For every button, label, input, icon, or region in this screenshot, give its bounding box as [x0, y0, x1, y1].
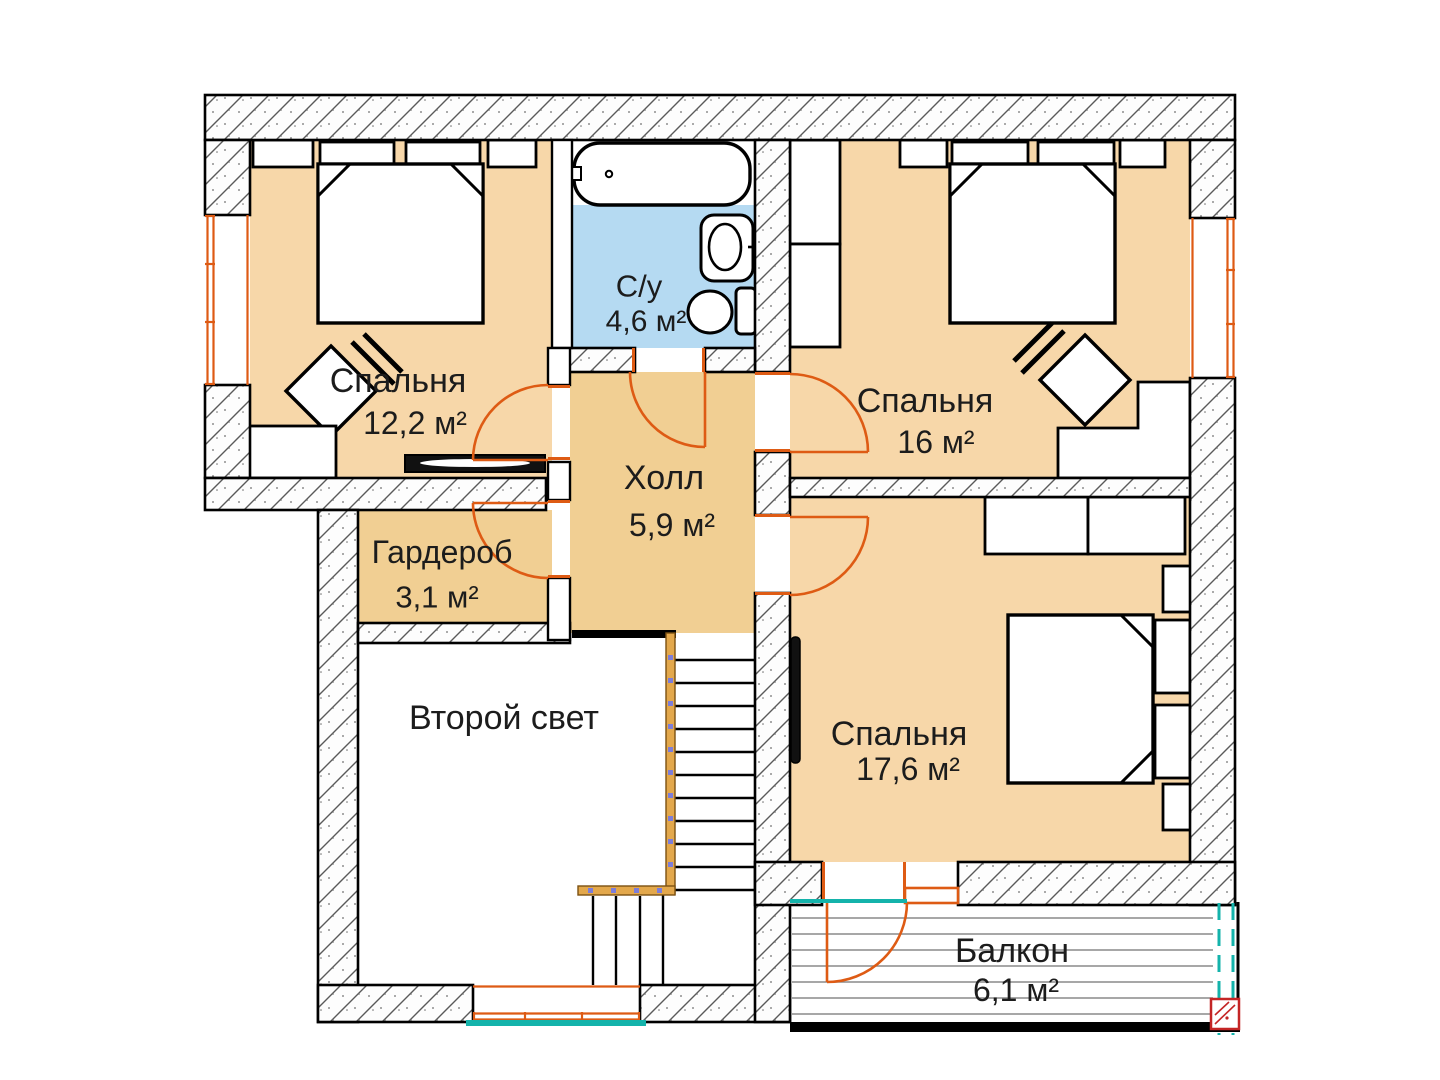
wall-bedroom3-bottom-left	[755, 862, 822, 905]
wall-hall-left-b	[548, 462, 570, 500]
wall-left-a	[205, 140, 250, 215]
bedroom3-pillow-bottom	[1155, 705, 1190, 778]
wall-bath-bottom-right	[705, 348, 755, 372]
window-bedroom2-east	[1193, 218, 1236, 378]
bathroom-name-text: С/у	[616, 269, 663, 304]
wall-central-a	[755, 140, 790, 372]
bedroom2-wardrobe-bottom	[790, 244, 840, 347]
bedroom3-name-label: Спальня	[831, 717, 968, 751]
bedroom2-name-label: Спальня	[857, 384, 994, 418]
wall-right-a	[1190, 140, 1235, 218]
balcony-edge-slab	[790, 1022, 1240, 1032]
bedroom1-name-label: Спальня	[330, 364, 467, 398]
wall-hall-left-a	[548, 348, 570, 385]
wall-bathroom-left	[552, 140, 572, 348]
hall-area-text: 5,9 м²	[629, 507, 715, 543]
window-sill-teal	[466, 1020, 646, 1026]
wall-right-b	[1190, 378, 1235, 905]
bathtub-faucet	[572, 167, 581, 180]
hall-floor	[570, 372, 755, 633]
bedroom3-name-text: Спальня	[831, 715, 968, 753]
wall-band-left	[205, 478, 546, 510]
toilet-bowl	[688, 291, 732, 333]
stair-opening-edge	[572, 630, 676, 638]
bathroom-name-label: С/у	[616, 271, 663, 302]
wall-hall-left-c	[548, 578, 570, 640]
bedroom2-wardrobe-top	[790, 140, 840, 244]
bedroom1-closet-right	[488, 140, 536, 167]
wall-left-b	[205, 385, 250, 478]
bedroom1-closet-left	[253, 140, 313, 167]
bedroom1-area-text: 12,2 м²	[363, 405, 467, 441]
balcony-rail-top-left	[790, 899, 907, 903]
bedroom3-tv	[791, 637, 800, 763]
wall-central-c	[755, 593, 790, 1022]
bedroom2-shelf-right	[1120, 140, 1165, 167]
floor-plan: Спальня 12,2 м² С/у 4,6 м² Спальня 16 м²…	[0, 0, 1440, 1080]
balcony-drain	[1211, 999, 1239, 1029]
bedroom3-area-label: 17,6 м²	[856, 753, 960, 785]
wall-bedroom3-bottom-right	[958, 862, 1235, 905]
bathroom-area-text: 4,6 м²	[606, 305, 687, 338]
balcony-name-label: Балкон	[955, 934, 1069, 968]
stair-railing-vertical	[666, 633, 675, 894]
window-void-south	[473, 987, 640, 1022]
hall-name-label: Холл	[624, 461, 704, 495]
wardrobe-area-text: 3,1 м²	[395, 580, 478, 615]
bedroom3-area-text: 17,6 м²	[856, 751, 960, 787]
wall-under-wardrobe	[358, 623, 570, 643]
bedroom3-nightstand-bottom	[1163, 784, 1193, 830]
bedroom2-area-text: 16 м²	[897, 424, 974, 460]
balcony-name-text: Балкон	[955, 932, 1069, 970]
bathtub	[574, 143, 750, 205]
wardrobe-name-label: Гардероб	[372, 536, 513, 568]
hall-name-text: Холл	[624, 459, 704, 497]
bedroom1-name-text: Спальня	[330, 362, 467, 400]
bedroom3-bed	[1008, 615, 1153, 783]
bedroom3-nightstand-top	[1163, 566, 1193, 612]
hall-area-label: 5,9 м²	[629, 509, 715, 541]
bedroom2-bed	[950, 164, 1115, 323]
wall-top	[205, 95, 1235, 140]
bedroom1-area-label: 12,2 м²	[363, 407, 467, 439]
wall-central-b	[755, 452, 790, 515]
toilet-tank	[736, 288, 756, 334]
bedroom3-closet-left	[985, 497, 1088, 554]
bedroom2-shelf-left	[900, 140, 947, 167]
bedroom3-pillow-top	[1155, 620, 1190, 693]
bedroom3-closet-right	[1088, 497, 1185, 554]
floor-plan-drawing	[0, 0, 1440, 1080]
bedroom2-name-text: Спальня	[857, 382, 994, 420]
balcony-area-label: 6,1 м²	[973, 974, 1059, 1006]
bedroom1-bed	[318, 164, 483, 323]
wardrobe-area-label: 3,1 м²	[395, 582, 478, 613]
wall-band-middle	[790, 478, 1190, 497]
window-bedroom1-west	[205, 215, 248, 385]
wardrobe-name-text: Гардероб	[372, 534, 513, 570]
bathroom-area-label: 4,6 м²	[606, 307, 687, 337]
stair-treads	[674, 660, 755, 890]
stair-winders	[593, 890, 663, 985]
staircase	[572, 630, 755, 985]
wall-bottom-a	[318, 985, 473, 1022]
bedroom1-desk	[240, 426, 336, 478]
bedroom2-area-label: 16 м²	[897, 426, 974, 458]
void-name-label: Второй свет	[409, 701, 599, 735]
stair-balusters	[588, 655, 673, 893]
void-name-text: Второй свет	[409, 699, 599, 737]
wall-left-lower	[318, 510, 358, 1022]
window-balcony	[905, 888, 958, 903]
balcony-area-text: 6,1 м²	[973, 972, 1059, 1008]
